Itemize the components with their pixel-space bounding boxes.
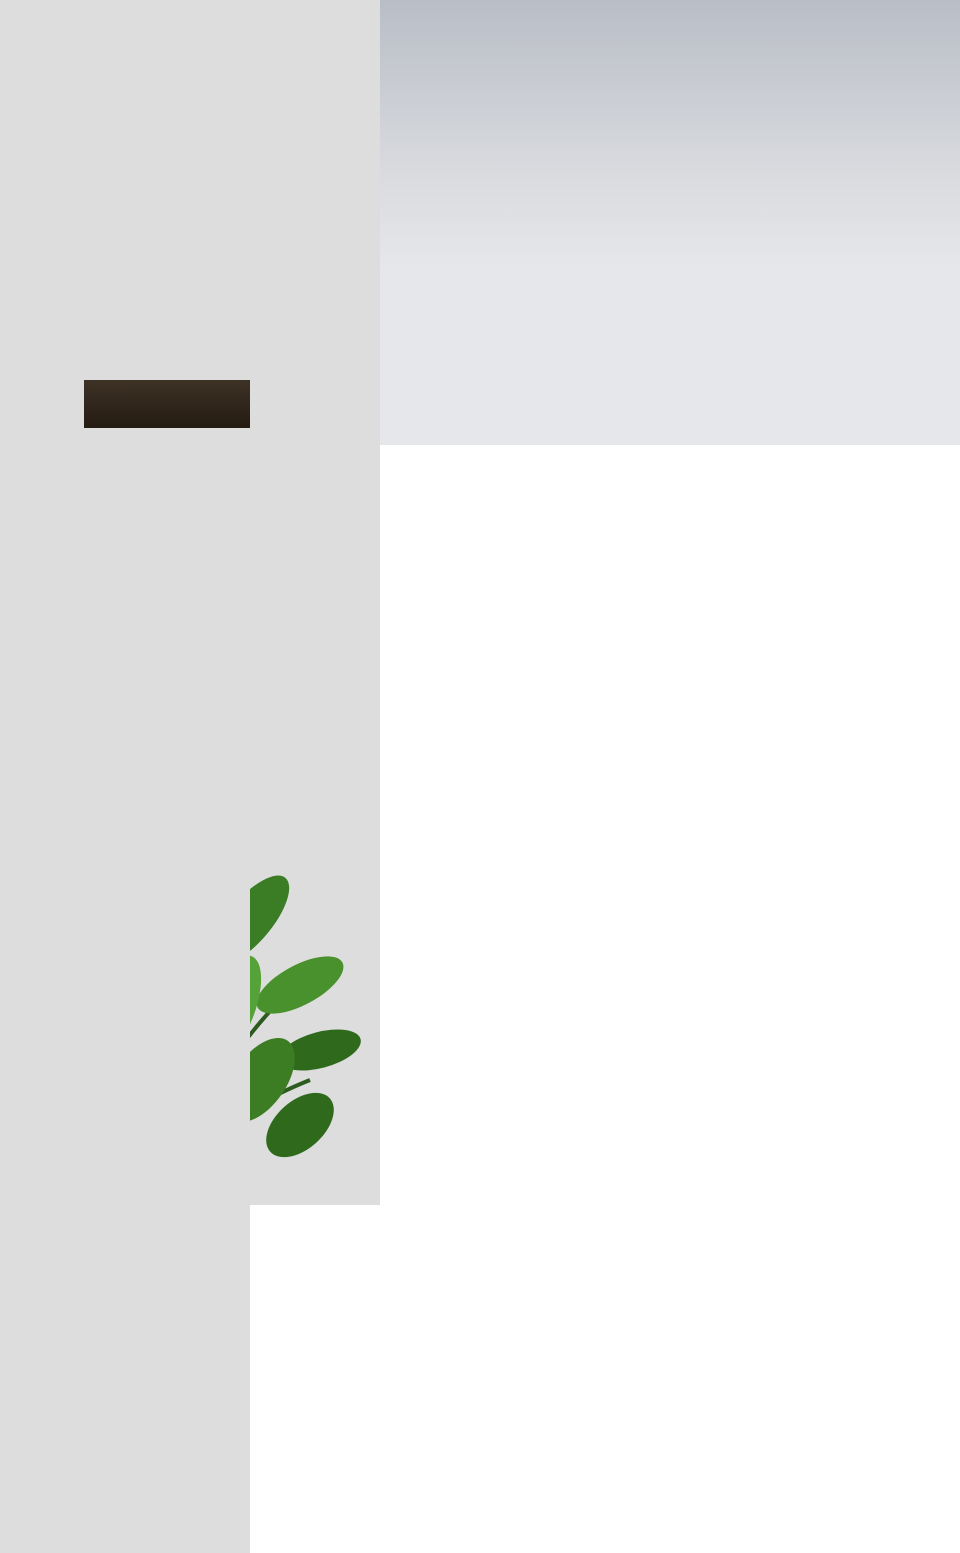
gallery-photo-wall <box>0 404 250 1242</box>
side-cabinet <box>84 380 250 428</box>
photo-frame <box>0 1086 44 1142</box>
photo-frame <box>0 860 15 875</box>
showroom-photo-collage: Paiya派雅门窗 Paiya派雅门窗 <box>0 0 960 1553</box>
shelf-photo <box>0 244 44 304</box>
chandelier-cylinder <box>0 1328 250 1374</box>
chandelier-cylinder <box>0 1430 250 1474</box>
photo-frame <box>0 1186 42 1242</box>
photo-frame <box>0 944 62 988</box>
photo-frame <box>0 746 42 802</box>
photo-frame <box>0 684 58 746</box>
photo-frame <box>0 460 60 526</box>
photo-frame <box>0 890 42 944</box>
chandelier-cylinder <box>0 1538 250 1553</box>
shelf-photo <box>0 360 36 404</box>
chandelier-cylinder <box>0 1474 250 1538</box>
shelf-photo <box>0 304 44 360</box>
photo-frame <box>0 817 15 832</box>
photo-frame <box>0 875 15 890</box>
photo-frame <box>0 584 62 630</box>
chandelier <box>0 1328 250 1553</box>
photo-frame <box>0 832 14 846</box>
photo-frame <box>0 802 15 817</box>
photo-frame <box>0 404 42 460</box>
photo-frame <box>0 1044 62 1086</box>
photo-livingroom-gallery <box>0 0 250 1553</box>
chandelier-stem <box>0 1242 250 1328</box>
photo-frame <box>0 1142 60 1186</box>
photo-frame <box>0 630 42 684</box>
chandelier-cylinder <box>0 1374 250 1430</box>
photo-frame <box>0 526 44 584</box>
photo-frame <box>0 846 14 860</box>
photo-frame <box>0 988 44 1044</box>
